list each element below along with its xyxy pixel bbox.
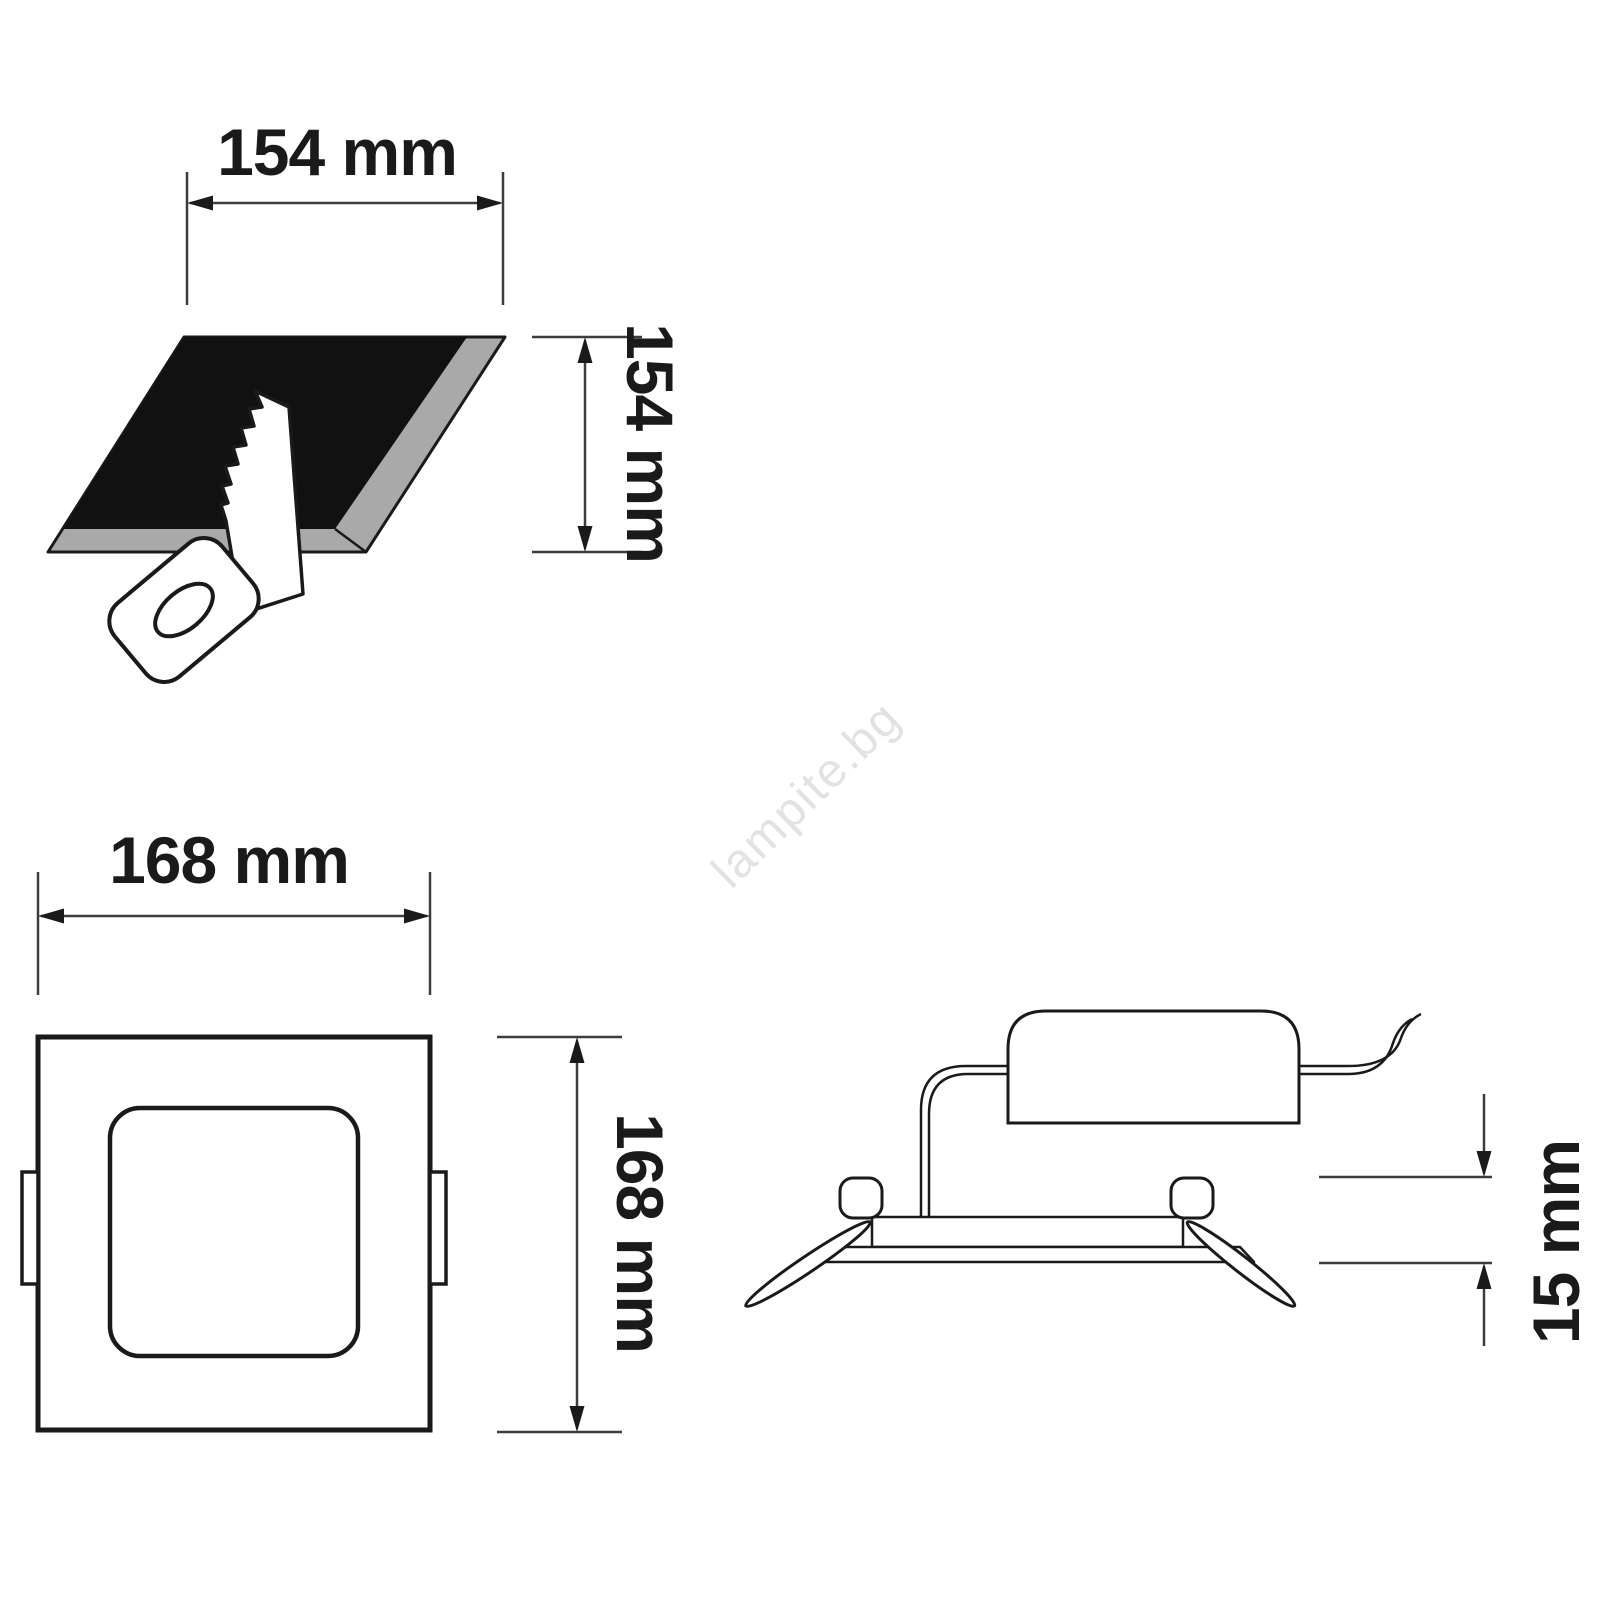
panel-side-view bbox=[741, 1011, 1492, 1346]
panel-width-label: 168 mm bbox=[109, 827, 349, 893]
side-tab-right bbox=[430, 1172, 446, 1284]
panel-height-label: 168 mm bbox=[607, 1113, 673, 1353]
spring-knob-left bbox=[840, 1178, 882, 1218]
ceiling-cutout-view bbox=[48, 172, 642, 692]
mounting-spring-left bbox=[741, 1215, 874, 1312]
arrowhead-up-icon bbox=[570, 1037, 585, 1063]
cutout-width-dimension bbox=[187, 172, 503, 305]
mounting-spring-right bbox=[1182, 1216, 1299, 1312]
cutout-height-label: 154 mm bbox=[617, 323, 683, 563]
spring-knob-right bbox=[1171, 1178, 1213, 1218]
arrowhead-left-icon bbox=[38, 909, 64, 924]
arrowhead-up-icon bbox=[1477, 1263, 1492, 1289]
driver-box bbox=[1008, 1011, 1299, 1123]
arrowhead-down-icon bbox=[1477, 1151, 1492, 1177]
panel-diffuser bbox=[110, 1108, 358, 1356]
arrowhead-right-icon bbox=[477, 196, 503, 211]
arrowhead-right-icon bbox=[404, 909, 430, 924]
arrowhead-up-icon bbox=[578, 337, 593, 363]
dimension-diagram: 154 mm 154 mm 168 mm 168 mm 15 mm lampit… bbox=[0, 0, 1600, 1600]
wire-right-outer bbox=[1299, 1014, 1421, 1066]
arrowhead-down-icon bbox=[570, 1406, 585, 1432]
panel-body bbox=[872, 1217, 1183, 1247]
cutout-width-label: 154 mm bbox=[217, 119, 457, 185]
panel-trim-flange bbox=[808, 1247, 1254, 1262]
wire-left-inner bbox=[929, 1074, 1008, 1216]
side-tab-left bbox=[22, 1172, 38, 1284]
panel-front-view bbox=[22, 872, 622, 1432]
arrowhead-left-icon bbox=[187, 196, 213, 211]
arrowhead-down-icon bbox=[578, 526, 593, 552]
recess-depth-label: 15 mm bbox=[1523, 1140, 1589, 1344]
recess-depth-dimension bbox=[1319, 1094, 1492, 1346]
